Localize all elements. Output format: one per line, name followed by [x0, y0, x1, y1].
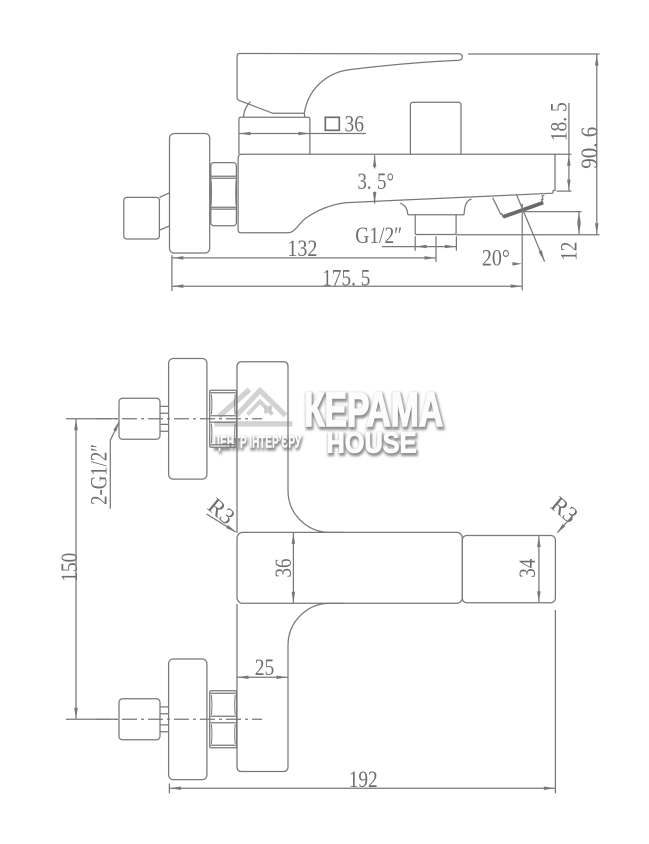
svg-text:HOUSE: HOUSE [327, 428, 417, 460]
svg-text:132: 132 [287, 236, 317, 261]
svg-text:R3: R3 [203, 493, 240, 529]
svg-text:G1/2″: G1/2″ [355, 223, 402, 248]
svg-text:34: 34 [515, 558, 540, 577]
svg-text:12: 12 [557, 242, 582, 261]
svg-text:36: 36 [345, 112, 365, 137]
svg-text:25: 25 [255, 655, 275, 680]
svg-text:175. 5: 175. 5 [322, 265, 370, 290]
svg-text:5°: 5° [377, 169, 394, 194]
svg-text:90. 6: 90. 6 [577, 127, 602, 169]
svg-text:192: 192 [349, 767, 378, 792]
svg-text:150: 150 [57, 553, 82, 582]
svg-text:18. 5: 18. 5 [547, 102, 572, 141]
svg-text:R3: R3 [546, 492, 583, 528]
svg-text:20°: 20° [482, 245, 510, 270]
svg-text:2-G1/2″: 2-G1/2″ [87, 444, 112, 505]
svg-text:3.: 3. [358, 169, 372, 194]
svg-text:36: 36 [271, 559, 296, 578]
